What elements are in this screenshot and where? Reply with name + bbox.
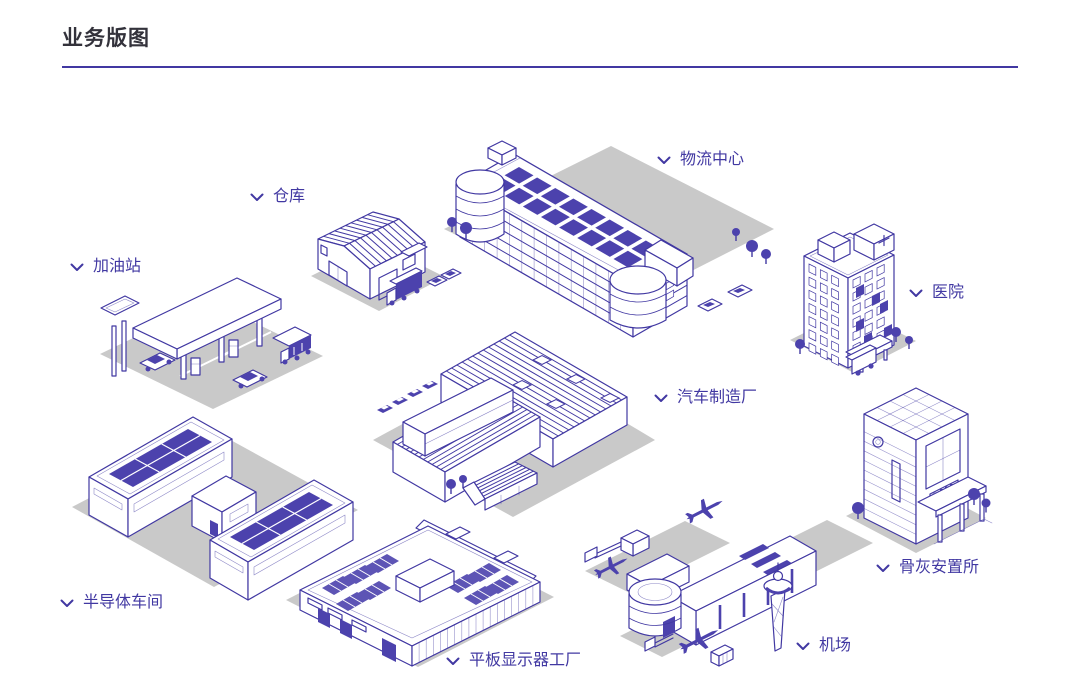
chevron-down-icon bbox=[796, 642, 810, 651]
chevron-down-icon bbox=[60, 599, 74, 608]
label-text: 物流中心 bbox=[680, 149, 744, 171]
label-text: 半导体车间 bbox=[83, 592, 163, 614]
chevron-down-icon bbox=[70, 263, 84, 272]
display-factory-illustration bbox=[278, 492, 558, 672]
label-text: 仓库 bbox=[273, 186, 305, 208]
page-title: 业务版图 bbox=[62, 27, 150, 50]
chevron-down-icon bbox=[657, 156, 671, 165]
chevron-down-icon bbox=[909, 289, 923, 298]
label-airport[interactable]: 机场 bbox=[796, 635, 851, 657]
label-warehouse[interactable]: 仓库 bbox=[250, 186, 305, 208]
chevron-down-icon bbox=[250, 193, 264, 202]
label-semiconductor-workshop[interactable]: 半导体车间 bbox=[60, 592, 163, 614]
business-map-page: 业务版图 bbox=[0, 0, 1080, 689]
label-auto-factory[interactable]: 汽车制造厂 bbox=[654, 387, 757, 409]
label-columbarium[interactable]: 骨灰安置所 bbox=[876, 557, 979, 579]
label-display-factory[interactable]: 平板显示器工厂 bbox=[446, 650, 581, 672]
gas-station-illustration bbox=[85, 268, 335, 400]
label-text: 机场 bbox=[819, 635, 851, 657]
label-text: 骨灰安置所 bbox=[899, 557, 979, 579]
hospital-illustration bbox=[776, 204, 921, 394]
label-logistics-center[interactable]: 物流中心 bbox=[657, 149, 744, 171]
label-text: 加油站 bbox=[93, 256, 141, 278]
label-text: 汽车制造厂 bbox=[677, 387, 757, 409]
chevron-down-icon bbox=[446, 657, 460, 666]
label-hospital[interactable]: 医院 bbox=[909, 282, 964, 304]
chevron-down-icon bbox=[654, 394, 668, 403]
label-text: 平板显示器工厂 bbox=[469, 650, 581, 672]
section-header: 业务版图 bbox=[62, 22, 1018, 68]
label-text: 医院 bbox=[932, 282, 964, 304]
label-gas-station[interactable]: 加油站 bbox=[70, 256, 141, 278]
chevron-down-icon bbox=[876, 564, 890, 573]
